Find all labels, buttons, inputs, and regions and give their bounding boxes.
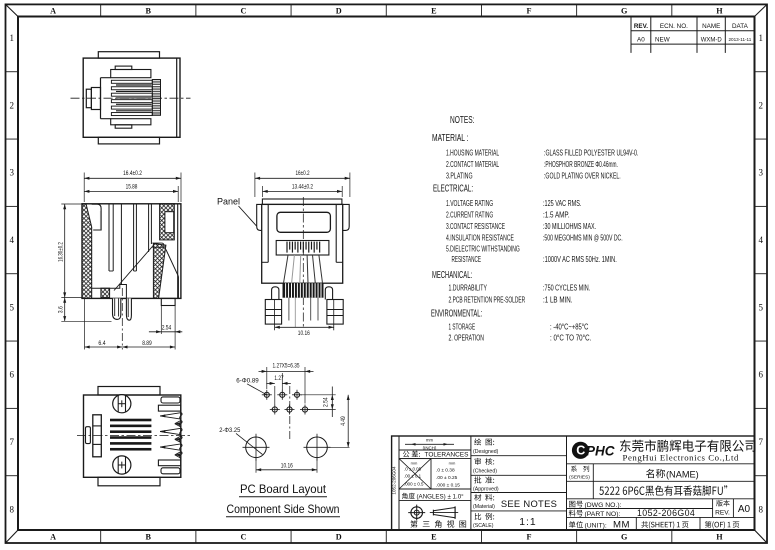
svg-text:8.89: 8.89 [142,340,152,347]
svg-text:1.VOLTAGE RATING: 1.VOLTAGE RATING [446,198,493,208]
svg-text:15.88: 15.88 [126,184,138,191]
svg-text:B: B [146,7,152,16]
svg-text:WXM-D: WXM-D [701,37,723,43]
svg-text:(DWG NO.):: (DWG NO.): [585,502,622,509]
svg-text:6: 6 [9,370,14,380]
svg-text:1 STORAGE: 1 STORAGE [449,322,476,332]
svg-text:3: 3 [9,168,14,178]
svg-text:H: H [716,7,723,16]
svg-text:PC Board Layout: PC Board Layout [240,482,327,496]
svg-text:16.30±0.2: 16.30±0.2 [57,242,64,262]
svg-text:(Designed): (Designed) [473,449,499,455]
svg-text:(INCH): (INCH) [423,446,437,451]
svg-text:6: 6 [758,370,763,380]
svg-text:G: G [621,533,628,542]
svg-text:F: F [527,7,532,16]
svg-text:.000 ± 0.5: .000 ± 0.5 [404,482,424,487]
svg-text:: 0°C TO 70°C.: : 0°C TO 70°C. [550,332,591,342]
svg-text:E: E [431,7,437,16]
svg-text:4.49: 4.49 [340,416,347,426]
svg-text:SEE NOTES: SEE NOTES [501,498,557,509]
svg-text:(UNIT):: (UNIT): [585,522,607,529]
svg-text:2. OPERATION: 2. OPERATION [449,332,484,342]
svg-text:NEW: NEW [655,36,670,43]
svg-text:4: 4 [758,235,763,245]
svg-text:RESISTANCE: RESISTANCE [452,254,482,264]
svg-text:2: 2 [758,100,763,110]
svg-text::125 VAC RMS.: :125 VAC RMS. [543,198,581,208]
svg-text:C: C [576,444,585,458]
svg-text::1.5 AMP.: :1.5 AMP. [543,210,570,220]
svg-text:(Checked): (Checked) [473,468,497,474]
svg-text::750 CYCLES MIN.: :750 CYCLES MIN. [543,282,590,292]
svg-text:ELECTRICAL:: ELECTRICAL: [433,184,473,195]
svg-text:ENVIRONMENTAL:: ENVIRONMENTAL: [431,309,482,320]
svg-text:H: H [716,533,723,542]
svg-text::PHOSPHOR BRONZE Φ0.46mm.: :PHOSPHOR BRONZE Φ0.46mm. [544,159,618,169]
svg-text:2013-11-11: 2013-11-11 [728,37,751,42]
svg-text:REV.: REV. [715,510,730,517]
svg-text:10.16: 10.16 [281,463,293,470]
svg-text:2: 2 [9,100,14,110]
svg-text:mm: mm [411,460,418,465]
svg-text:16±0.2: 16±0.2 [295,170,309,177]
svg-text:.000 ± 0.15: .000 ± 0.15 [436,483,460,489]
svg-text:G: G [621,7,628,16]
svg-text:3: 3 [758,168,763,178]
svg-text:D: D [336,533,342,542]
svg-text:2.54: 2.54 [162,325,172,332]
svg-text:1.HOUSING MATERIAL: 1.HOUSING MATERIAL [446,148,499,158]
svg-text:(SCALE): (SCALE) [473,523,494,529]
svg-text:A0: A0 [738,504,751,515]
svg-text:1052-206G04: 1052-206G04 [391,466,396,495]
svg-text:mm: mm [426,438,433,443]
svg-text:TOLERANCES: TOLERANCES [425,452,469,459]
svg-text:Panel: Panel [217,197,240,207]
svg-text:4: 4 [9,235,14,245]
svg-text:PHC: PHC [586,444,615,459]
svg-text:5: 5 [9,302,14,312]
svg-text:PengHui Electronics Co.,Ltd: PengHui Electronics Co.,Ltd [623,452,740,462]
svg-text:(NAME): (NAME) [666,469,699,479]
svg-text:NAME: NAME [702,23,720,30]
svg-text:2-Φ3.25: 2-Φ3.25 [219,427,240,434]
svg-text:1.27X5=6.35: 1.27X5=6.35 [273,363,300,370]
svg-text:8: 8 [758,504,763,514]
svg-text:mm: mm [449,460,456,465]
svg-text:C: C [241,7,247,16]
svg-text:: -40°C~+85°C: : -40°C~+85°C [550,322,588,332]
svg-text:(Material): (Material) [473,504,495,510]
svg-text:.0 ± 0.05: .0 ± 0.05 [404,467,422,472]
svg-text:NOTES:: NOTES: [450,115,475,126]
svg-text:2.54: 2.54 [323,397,330,407]
svg-text:1.27: 1.27 [274,375,284,382]
svg-text:1052-206G04: 1052-206G04 [637,508,695,518]
svg-text:7: 7 [758,437,763,447]
svg-text:(ANGLES) ± 1.0°: (ANGLES) ± 1.0° [417,494,465,501]
svg-text:MECHANICAL:: MECHANICAL: [432,270,472,281]
svg-text::500 MEGOHMS MIN @ 500V DC.: :500 MEGOHMS MIN @ 500V DC. [543,233,623,243]
svg-text:B: B [146,533,152,542]
svg-text:MM: MM [613,519,630,530]
svg-text:5.DIELECTRIC WITHSTANDING: 5.DIELECTRIC WITHSTANDING [446,244,520,254]
svg-text:1.DURRABILITY: 1.DURRABILITY [449,282,488,292]
svg-text:2.PCB RETENTION PRE-SOLDER: 2.PCB RETENTION PRE-SOLDER [449,295,526,305]
svg-text::GOLD PLATING OVER NICKEL.: :GOLD PLATING OVER NICKEL. [544,171,621,181]
svg-text:.00 ± 0.25: .00 ± 0.25 [436,475,458,481]
svg-text:Component Side Shown: Component Side Shown [227,502,340,516]
svg-text:10.16: 10.16 [298,330,310,337]
svg-text:.00 ± 0.1: .00 ± 0.1 [404,474,422,479]
svg-text:4.INSULATION RESISTANCE: 4.INSULATION RESISTANCE [446,233,514,243]
svg-text:3.6: 3.6 [57,306,64,314]
svg-text:MATERIAL :: MATERIAL : [432,133,469,144]
svg-text:8: 8 [9,504,14,514]
svg-text:1:1: 1:1 [519,517,536,528]
svg-text:6-Φ0.89: 6-Φ0.89 [236,378,259,385]
svg-text:E: E [431,533,437,542]
svg-text:7: 7 [9,437,14,447]
svg-text::1 LB MIN.: :1 LB MIN. [543,295,573,305]
svg-text:16.4±0.2: 16.4±0.2 [123,170,142,177]
svg-text::GLASS FILLED POLYESTER UL94V-: :GLASS FILLED POLYESTER UL94V-0. [544,148,638,158]
svg-text::1000V AC RMS 50Hz. 1MIN.: :1000V AC RMS 50Hz. 1MIN. [543,254,617,264]
svg-text::30 MILLIOHMS MAX.: :30 MILLIOHMS MAX. [543,221,596,231]
svg-text:1: 1 [758,33,763,43]
svg-text:D: D [336,7,342,16]
svg-text:A0: A0 [637,36,645,43]
svg-text:2.CONTACT MATERIAL: 2.CONTACT MATERIAL [446,159,499,169]
svg-text:REV.: REV. [634,23,648,30]
svg-text:ECN. NO.: ECN. NO. [660,23,688,30]
svg-text:(PART NO):: (PART NO): [585,511,621,518]
svg-text:F: F [527,533,532,542]
svg-text:DATA: DATA [732,23,749,30]
svg-text:3.PLATING: 3.PLATING [446,171,473,181]
svg-text:13.44±0.2: 13.44±0.2 [292,184,314,191]
svg-text:C: C [241,533,247,542]
svg-text:5: 5 [758,302,763,312]
svg-text:(Approved): (Approved) [473,486,499,492]
svg-text:.0 ± 0.38: .0 ± 0.38 [436,468,455,474]
svg-text:1: 1 [9,33,14,43]
svg-text:A: A [50,7,56,16]
svg-text:6.4: 6.4 [98,340,106,347]
svg-text:(SERIES): (SERIES) [569,475,590,481]
svg-text:2.CURRENT RATING: 2.CURRENT RATING [446,210,493,220]
svg-text:A: A [50,533,56,542]
svg-text:3.CONTACT RESISTANCE: 3.CONTACT RESISTANCE [446,221,505,231]
